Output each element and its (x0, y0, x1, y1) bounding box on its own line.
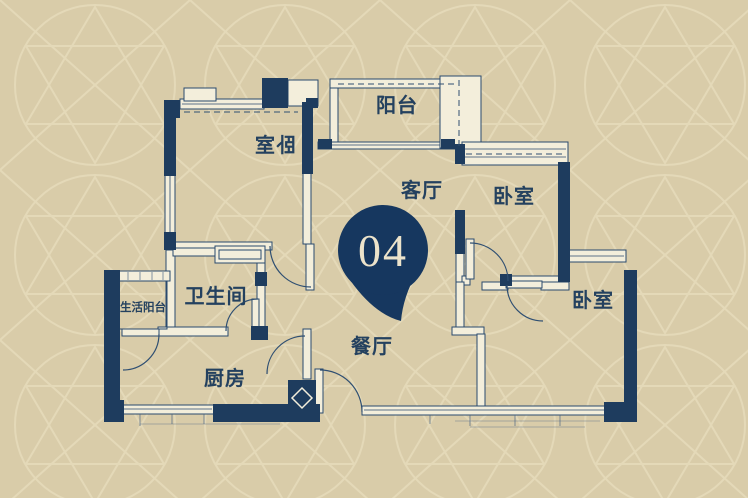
room-label-kitchen: 厨房 (204, 366, 246, 390)
room-label-balcony: 阳台 (376, 93, 418, 117)
room-label-bedroom-3: 卧室 (572, 288, 614, 312)
unit-marker-number: 04 (358, 225, 408, 276)
floor-plan-canvas: 卧室 阳台 客厅 卧室 卧室 生活阳台 卫生间 厨房 餐厅 04 (0, 0, 748, 498)
room-label-bedroom-2: 卧室 (493, 184, 535, 208)
room-label-bedroom-1: 卧室 (254, 133, 296, 157)
room-label-bathroom: 卫生间 (185, 285, 248, 308)
kitchen-flue (288, 380, 316, 420)
floor-plan: 卧室 阳台 客厅 卧室 卧室 生活阳台 卫生间 厨房 餐厅 04 (0, 0, 748, 498)
room-label-service-balcony: 生活阳台 (120, 300, 166, 314)
room-label-living-room: 客厅 (400, 178, 443, 202)
room-label-dining-room: 餐厅 (351, 334, 393, 358)
